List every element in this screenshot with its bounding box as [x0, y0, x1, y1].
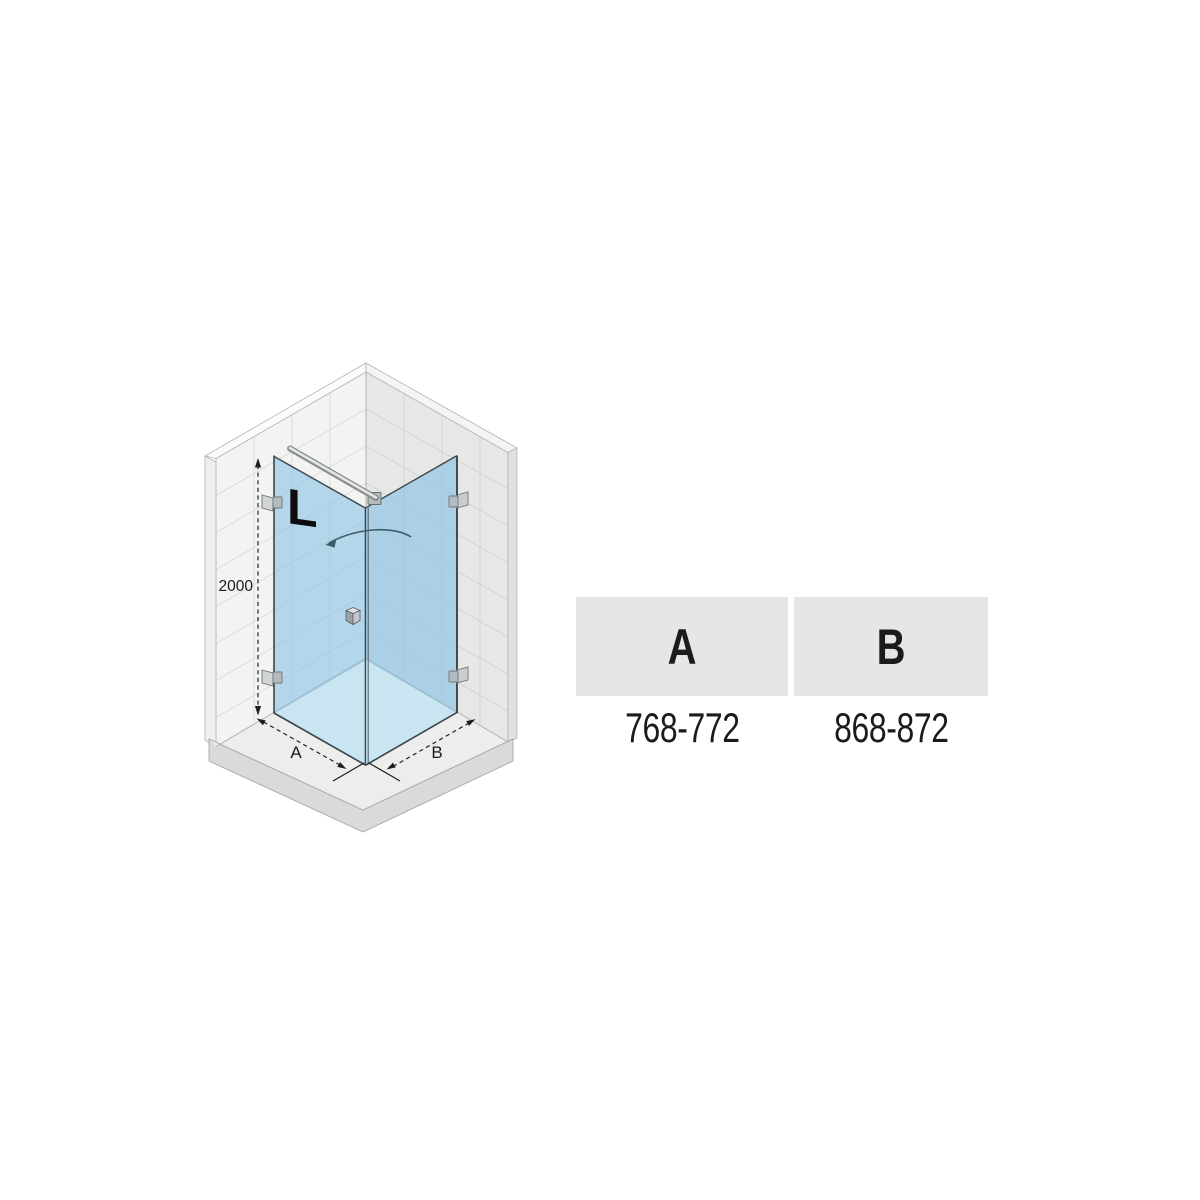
spec-table-header-a: A	[576, 597, 788, 696]
spec-table-header-b: B	[794, 597, 988, 696]
right-wall-end-face	[508, 448, 517, 743]
spec-value-a: 768-772	[576, 704, 788, 752]
width-b-label: B	[431, 743, 442, 762]
spec-header-a-text: A	[668, 618, 697, 676]
spec-header-b-text: B	[877, 618, 906, 676]
width-a-label: A	[290, 743, 302, 762]
spec-value-b: 868-872	[794, 704, 988, 752]
height-dimension-label: 2000	[219, 578, 254, 595]
left-hand-version-logo: L	[287, 478, 318, 538]
spec-value-b-text: 868-872	[834, 704, 948, 752]
left-wall-end-face	[205, 456, 216, 747]
spec-value-a-text: 768-772	[625, 704, 739, 752]
door-handle-icon	[346, 608, 360, 625]
page: L 2000 A B A	[0, 0, 1200, 1200]
